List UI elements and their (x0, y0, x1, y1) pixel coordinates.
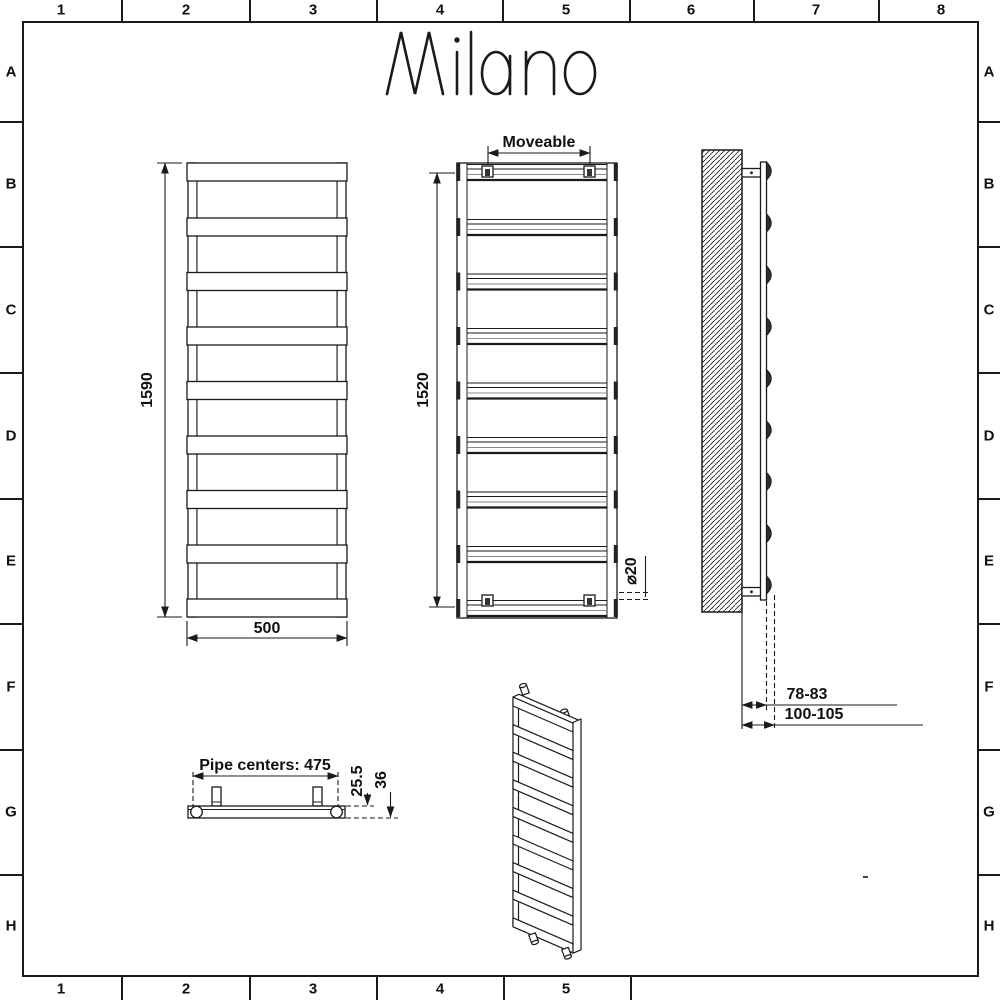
front-height-label: 1590 (139, 372, 156, 408)
side-bar-ends (767, 162, 772, 594)
dim-front-width: 500 (187, 620, 347, 646)
isometric-view (513, 683, 581, 960)
iso-bars (513, 697, 573, 953)
iso-right-rail (573, 719, 581, 953)
front-width-label: 500 (254, 620, 281, 637)
dim-rear-height: 1520 (415, 173, 455, 607)
front-view: 1590 500 (139, 163, 347, 646)
dim-front-height: 1590 (139, 163, 182, 617)
side-view: 78-83 100-105 (702, 150, 923, 729)
right-rail-end (331, 806, 343, 818)
dim-moveable: Moveable (488, 134, 590, 165)
wall-to-front-max-label: 100-105 (785, 706, 844, 723)
wall-section (702, 150, 742, 612)
total-depth-label: 36 (373, 771, 390, 789)
dim-top-depths: 25.5 36 (346, 765, 398, 818)
dim-tube-diameter: ⌀20 (619, 556, 649, 600)
moveable-label: Moveable (503, 134, 576, 151)
side-brackets (742, 169, 761, 597)
pipe-connections (212, 787, 322, 806)
bracket-depth-label: 25.5 (349, 765, 366, 796)
side-rail-profile (761, 162, 767, 600)
top-bar-profile (188, 806, 345, 818)
drawing-sheet: 1 2 3 4 5 6 7 8 1 2 3 4 5 A B C D E F G … (0, 0, 1000, 1000)
top-view: Pipe centers: 475 25.5 36 (188, 757, 398, 818)
radiator-drawing: 1590 500 (0, 0, 1000, 1000)
front-view-bars (187, 163, 347, 617)
dim-depths: 78-83 100-105 (742, 595, 923, 729)
pipe-centers-label: Pipe centers: 475 (199, 757, 331, 774)
left-rail-end (191, 806, 203, 818)
iso-pipe-stub (519, 683, 529, 696)
tube-diameter-label: ⌀20 (623, 557, 640, 585)
rear-height-label: 1520 (415, 372, 432, 408)
wall-to-front-min-label: 78-83 (787, 686, 828, 703)
rear-outline (457, 163, 617, 618)
rear-view: Moveable 1520 ⌀20 (415, 134, 649, 618)
stray-mark (863, 876, 868, 878)
